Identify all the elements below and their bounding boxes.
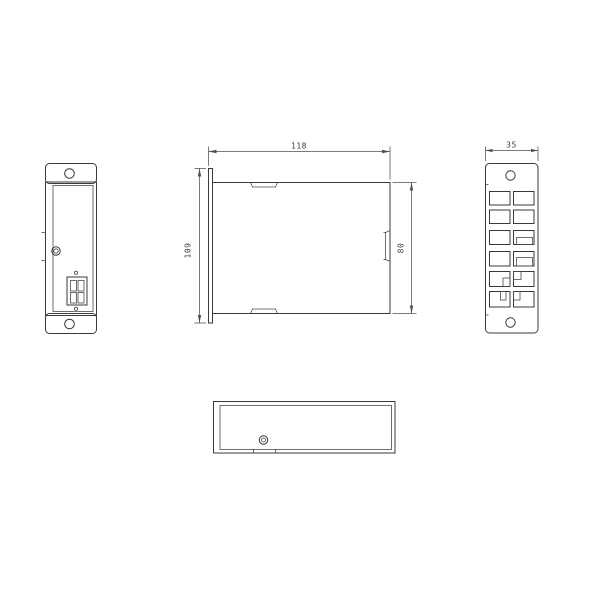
terminal-slot (78, 281, 84, 292)
bottom-screw-inner (262, 438, 266, 442)
panel-outline (486, 164, 539, 334)
arrowhead-top (410, 183, 413, 191)
port-cell (490, 252, 511, 267)
panel-hole-top (506, 171, 515, 180)
port-cell (490, 192, 511, 206)
arrowhead-right (531, 149, 538, 152)
port-cell (490, 292, 511, 308)
top-mounting-tab (46, 164, 97, 184)
dimension-flange-height: 109 (184, 169, 207, 324)
port-cell (514, 272, 535, 287)
terminal-block (67, 271, 87, 310)
bottom-snap-clip (251, 309, 278, 314)
port-cell (490, 231, 511, 245)
arrowhead-bottom (198, 315, 201, 323)
dimension-side-width: 35 (486, 141, 539, 162)
top-snap-clip (251, 183, 278, 188)
port-key-notch (514, 272, 522, 280)
mounting-flange (209, 169, 213, 324)
terminal-screw-bottom (74, 307, 77, 310)
bottom-screw-outer (259, 436, 267, 444)
port-cell (490, 210, 511, 224)
terminal-screw-top (74, 271, 77, 274)
bottom-mounting-hole (65, 319, 75, 329)
arrowhead-bottom (410, 306, 413, 314)
port-cell (514, 292, 535, 308)
front-body-outline (213, 183, 391, 314)
bottom-outline (214, 402, 396, 454)
technical-drawing-sheet: 118 109 80 (0, 0, 600, 600)
left-side-view (42, 164, 97, 334)
panel-screw-inner (54, 249, 58, 253)
port-key-notch (514, 292, 521, 301)
front-view (209, 169, 391, 324)
right-snap-clip (386, 231, 391, 262)
right-side-view (486, 164, 539, 334)
bottom-view (214, 402, 396, 454)
port-grid (490, 192, 535, 308)
dimension-label: 118 (291, 142, 307, 151)
dimension-label: 80 (397, 243, 406, 254)
dimension-label: 109 (184, 243, 193, 259)
bottom-inner-line (220, 406, 392, 450)
panel-hole-bottom (506, 318, 515, 327)
terminal-slot (78, 293, 84, 304)
dimension-front-width: 118 (209, 142, 391, 180)
bottom-mounting-tab (46, 314, 97, 334)
port-key-notch (503, 278, 510, 287)
terminal-slot (71, 281, 77, 292)
arrowhead-right (382, 150, 390, 153)
port-cell (490, 272, 511, 287)
port-cell (514, 192, 535, 206)
arrowhead-left (486, 149, 493, 152)
dimension-label: 35 (506, 141, 517, 150)
top-mounting-hole (65, 169, 75, 179)
port-cell (514, 210, 535, 224)
arrowhead-top (198, 169, 201, 177)
port-key-notch (501, 292, 507, 301)
drawing-svg: 118 109 80 (0, 0, 600, 600)
dimension-body-height: 80 (393, 183, 417, 314)
port-insert (517, 258, 533, 267)
terminal-slot (71, 293, 77, 304)
port-insert (517, 238, 533, 245)
arrowhead-left (209, 150, 217, 153)
